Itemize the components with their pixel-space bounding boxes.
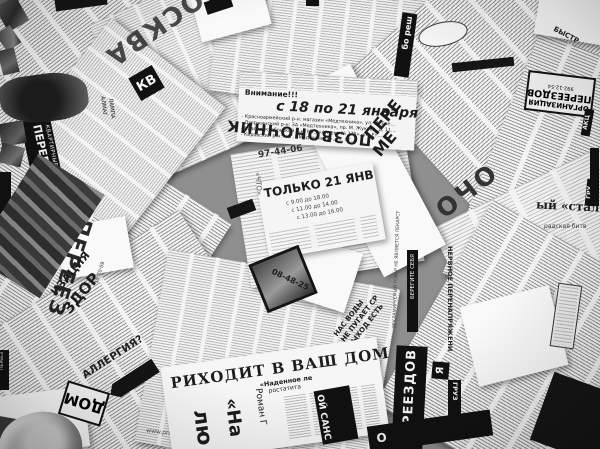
ad-lampa: ЛАМПА [106, 98, 114, 119]
black-edge-strip [590, 148, 599, 206]
ad-dom-label: ДОМ [62, 389, 107, 418]
newspaper-collage-photo: МОСКВА КВ АЛМАГ ЛАМПА КВАРТИРНЫЕ ПЕРЕЕЗ … [0, 0, 600, 449]
text-texture [553, 286, 579, 346]
subhead-bitva: радская битв [544, 224, 586, 230]
strip-beregite: БЕРЕГИТЕ СЕБЯ [410, 254, 416, 299]
ad-almag: АЛМАГ [98, 96, 106, 116]
attention-label: Внимание!!! [245, 89, 298, 100]
headline-nervnoe-vertical: НЕРВНОЕ ПЕРЕНАПРЯЖЕНИ [446, 246, 453, 321]
black-header-strip [306, 0, 319, 6]
fragment-o: О [376, 430, 388, 445]
strip-pereez-edge: ПЕРЕЕЗ [0, 352, 5, 370]
fragment-chto: «ЧТО» [253, 172, 262, 196]
fragment-lyu: лю [190, 408, 217, 447]
fragment-ya: Я [435, 366, 447, 375]
fragment-na: «На [221, 397, 245, 438]
black-vertical-strip: ПЕРЕЕЗ [0, 350, 9, 390]
fragment-gruz: ГРУЗ [451, 382, 459, 401]
black-chip-ya: Я [431, 361, 449, 379]
black-vertical-strip: ГРУЗ [448, 380, 461, 416]
strip-text: бо реш [400, 16, 414, 50]
fragment-roman: Роман Г [252, 388, 267, 426]
